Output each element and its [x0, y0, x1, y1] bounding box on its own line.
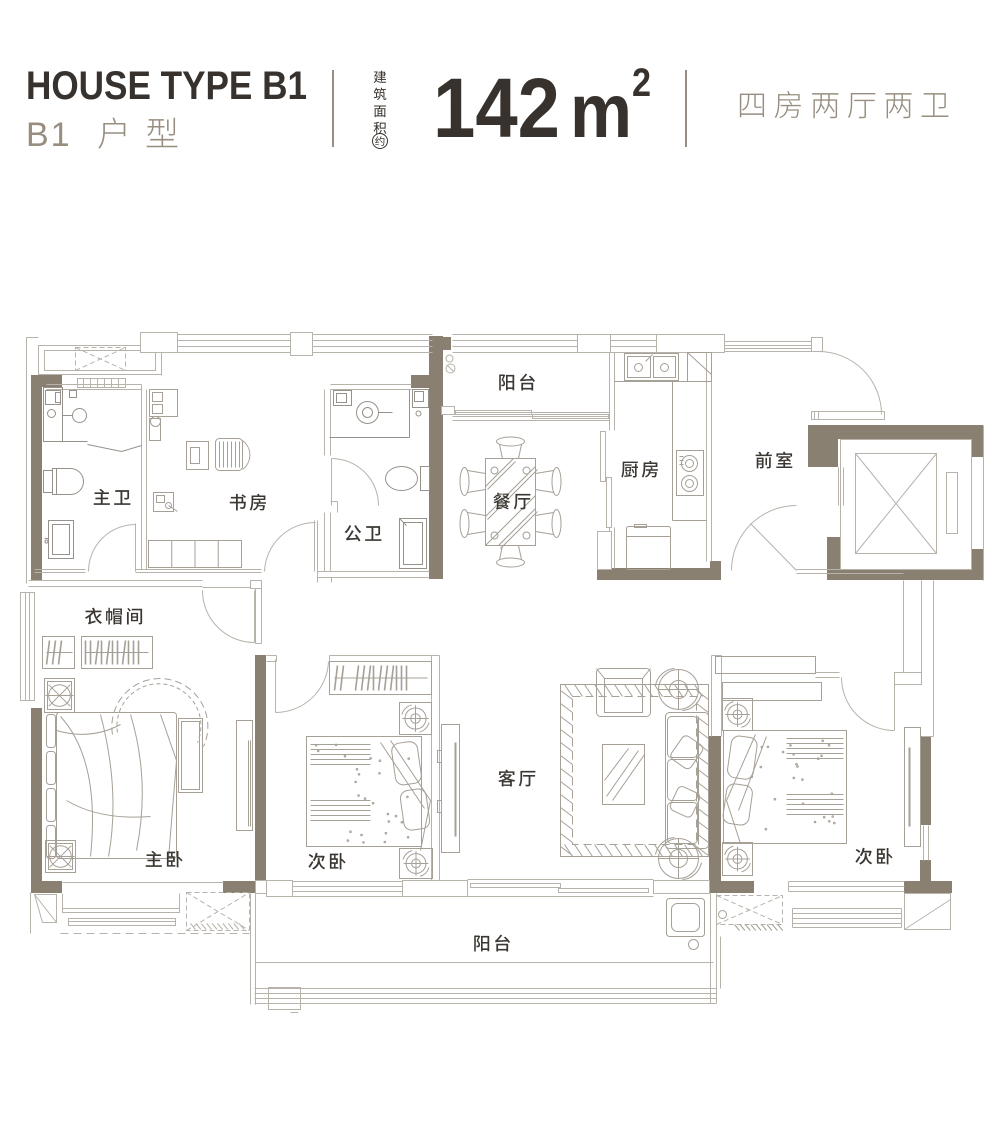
svg-text:m: m	[570, 69, 632, 154]
svg-text:2: 2	[632, 61, 651, 105]
svg-text:B1: B1	[26, 116, 72, 154]
svg-text:HOUSE TYPE B1: HOUSE TYPE B1	[26, 64, 307, 108]
svg-text:142: 142	[433, 61, 560, 155]
